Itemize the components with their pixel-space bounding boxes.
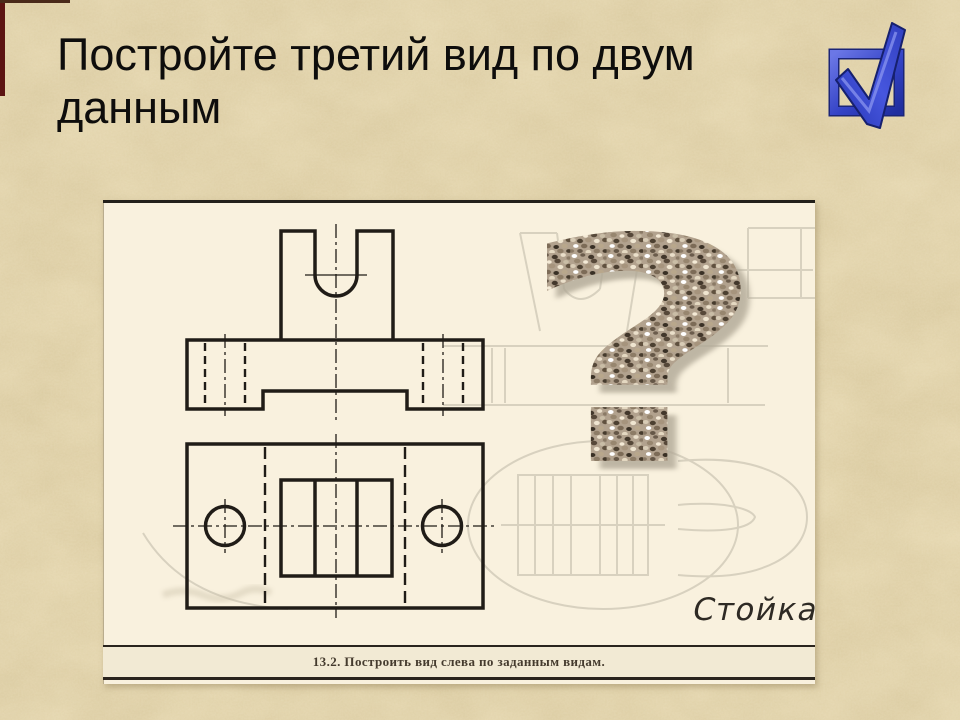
scan-edge-artifact (0, 0, 5, 96)
question-mark-glyph: ? (517, 203, 769, 534)
check-box-icon[interactable] (824, 16, 956, 138)
part-label: Стойка (689, 592, 815, 628)
slide-title: Постройте третий вид по двум данным (57, 28, 857, 134)
worksheet-page: ? ? Стойка 13.2. Построить вид слева по … (103, 200, 815, 684)
front-view-outline (187, 231, 483, 409)
presentation-slide: Постройте третий вид по двум данным (0, 0, 960, 720)
figure-caption-strip: 13.2. Построить вид слева по заданным ви… (103, 645, 815, 680)
front-view-hidden-lines (205, 343, 463, 406)
figure-caption: 13.2. Построить вид слева по заданным ви… (313, 654, 605, 670)
front-view (187, 224, 483, 421)
scan-edge-artifact-top (0, 0, 70, 3)
orthographic-drawing: ? ? Стойка (103, 203, 815, 645)
top-view-centerlines (173, 434, 497, 618)
question-mark: ? (517, 203, 769, 534)
top-view (173, 434, 497, 618)
